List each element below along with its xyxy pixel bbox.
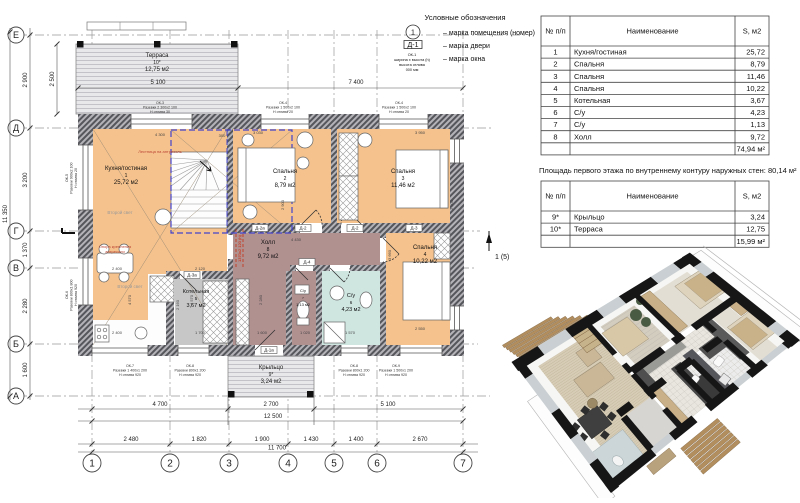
svg-text:1 370: 1 370 bbox=[23, 242, 29, 258]
svg-text:2 160: 2 160 bbox=[175, 299, 180, 310]
svg-text:3: 3 bbox=[402, 176, 405, 182]
svg-text:Терраса: Терраса bbox=[145, 53, 169, 59]
svg-text:высота отлива: высота отлива bbox=[399, 63, 426, 67]
svg-text:4 700: 4 700 bbox=[152, 402, 168, 408]
svg-text:Кухня/гостиная: Кухня/гостиная bbox=[105, 166, 147, 172]
svg-text:S, м2: S, м2 bbox=[743, 192, 762, 201]
svg-text:Н отлива 920: Н отлива 920 bbox=[119, 373, 141, 377]
svg-text:Разевки 1 500х2 100: Разевки 1 500х2 100 bbox=[266, 106, 300, 110]
svg-text:3: 3 bbox=[553, 72, 557, 81]
svg-text:ОК-1: ОК-1 bbox=[408, 53, 417, 57]
svg-text:000 мм: 000 мм bbox=[406, 68, 419, 72]
svg-text:– марка помещения (номер): – марка помещения (номер) bbox=[443, 30, 535, 37]
svg-text:ОК-7: ОК-7 bbox=[126, 364, 134, 368]
svg-text:– марка окна: – марка окна bbox=[443, 56, 485, 63]
svg-text:Котельная: Котельная bbox=[183, 289, 210, 295]
svg-text:11,46 м2: 11,46 м2 bbox=[391, 183, 415, 189]
svg-text:Н отлива 920: Н отлива 920 bbox=[385, 373, 407, 377]
svg-text:Д-2: Д-2 bbox=[299, 226, 307, 231]
svg-text:1 600: 1 600 bbox=[23, 362, 29, 378]
svg-text:1,13 м2: 1,13 м2 bbox=[296, 302, 311, 307]
svg-text:5: 5 bbox=[331, 459, 337, 470]
svg-text:2 280: 2 280 bbox=[258, 294, 263, 305]
svg-text:10,22: 10,22 bbox=[746, 84, 765, 93]
svg-text:3 660: 3 660 bbox=[387, 249, 392, 260]
svg-text:12,75 м2: 12,75 м2 bbox=[145, 67, 170, 73]
svg-text:Разевки 1 500х1 200: Разевки 1 500х1 200 bbox=[379, 369, 413, 373]
svg-text:1 570: 1 570 bbox=[345, 330, 356, 335]
svg-text:2: 2 bbox=[553, 60, 557, 69]
svg-text:Лестница на антресоль: Лестница на антресоль bbox=[138, 149, 182, 154]
svg-text:1 020: 1 020 bbox=[300, 330, 311, 335]
svg-text:А: А bbox=[13, 391, 19, 401]
svg-text:11,46: 11,46 bbox=[747, 72, 765, 81]
svg-text:Спальня: Спальня bbox=[574, 60, 604, 69]
svg-text:Разевки 800х1 200: Разевки 800х1 200 bbox=[338, 369, 369, 373]
svg-text:2 550: 2 550 bbox=[415, 326, 426, 331]
svg-text:Второй свет: Второй свет bbox=[107, 209, 132, 215]
svg-text:Разевки 2 300х2 100: Разевки 2 300х2 100 bbox=[143, 106, 177, 110]
svg-text:Д: Д bbox=[13, 123, 19, 133]
svg-text:12,75: 12,75 bbox=[746, 225, 765, 234]
svg-text:Д-3: Д-3 bbox=[410, 226, 418, 231]
svg-text:4 570: 4 570 bbox=[189, 294, 194, 305]
svg-text:Д-2а: Д-2а bbox=[255, 226, 265, 231]
svg-text:3,24: 3,24 bbox=[750, 213, 765, 222]
svg-text:6: 6 bbox=[374, 459, 380, 470]
svg-text:Н отлива 920: Н отлива 920 bbox=[74, 284, 78, 306]
svg-text:С/у: С/у bbox=[574, 120, 586, 129]
svg-text:Разевки 1 500х2 100: Разевки 1 500х2 100 bbox=[382, 106, 416, 110]
svg-text:12 500: 12 500 bbox=[264, 414, 283, 420]
svg-text:2: 2 bbox=[284, 176, 287, 182]
svg-text:Разевки 1 400х1 200: Разевки 1 400х1 200 bbox=[113, 369, 147, 373]
svg-text:1: 1 bbox=[411, 30, 415, 37]
svg-text:Д-1а: Д-1а bbox=[264, 348, 274, 353]
svg-text:1 820: 1 820 bbox=[191, 437, 207, 443]
svg-text:2 900: 2 900 bbox=[449, 199, 454, 210]
svg-text:5: 5 bbox=[553, 96, 557, 105]
svg-text:9,72 м2: 9,72 м2 bbox=[258, 254, 279, 260]
svg-text:10*: 10* bbox=[153, 60, 161, 66]
svg-text:Котельная: Котельная bbox=[574, 96, 610, 105]
svg-text:Холл: Холл bbox=[261, 240, 276, 246]
svg-text:Холл: Холл bbox=[574, 132, 592, 141]
svg-text:4 300: 4 300 bbox=[155, 132, 166, 137]
svg-text:С/у: С/у bbox=[574, 108, 586, 117]
svg-text:3,24 м2: 3,24 м2 bbox=[261, 379, 282, 385]
svg-text:Кухня/гостиная: Кухня/гостиная bbox=[574, 48, 627, 57]
svg-text:8: 8 bbox=[267, 247, 270, 253]
svg-text:2 670: 2 670 bbox=[412, 437, 428, 443]
svg-text:№ п/п: № п/п bbox=[545, 192, 565, 201]
svg-text:Терраса: Терраса bbox=[574, 225, 604, 234]
svg-text:Крыльцо: Крыльцо bbox=[259, 365, 284, 371]
svg-text:8,79: 8,79 bbox=[750, 60, 765, 69]
svg-text:8,79 м2: 8,79 м2 bbox=[275, 183, 296, 189]
svg-text:10*: 10* bbox=[550, 225, 561, 234]
svg-text:Б: Б bbox=[13, 339, 19, 349]
svg-text:74,94 м²: 74,94 м² bbox=[736, 144, 765, 153]
svg-text:2 700: 2 700 bbox=[263, 402, 279, 408]
svg-text:С/у: С/у bbox=[347, 293, 356, 299]
svg-text:8: 8 bbox=[553, 132, 557, 141]
svg-text:Спальня: Спальня bbox=[574, 72, 604, 81]
svg-text:– марка двери: – марка двери bbox=[443, 43, 490, 50]
svg-text:6: 6 bbox=[553, 108, 557, 117]
svg-text:Спальня: Спальня bbox=[574, 84, 604, 93]
svg-text:5 100: 5 100 bbox=[380, 402, 396, 408]
svg-text:Спальня: Спальня bbox=[413, 245, 437, 251]
svg-text:Д-1: Д-1 bbox=[408, 42, 419, 49]
svg-text:1 (5): 1 (5) bbox=[495, 254, 509, 261]
svg-text:4 570: 4 570 bbox=[127, 294, 132, 305]
svg-text:5 100: 5 100 bbox=[150, 80, 166, 86]
svg-text:1 430: 1 430 bbox=[303, 437, 319, 443]
svg-text:1,13: 1,13 bbox=[750, 120, 765, 129]
svg-text:ОК-9: ОК-9 bbox=[392, 364, 400, 368]
svg-text:Н отлива 20: Н отлива 20 bbox=[389, 110, 409, 114]
svg-text:9,72: 9,72 bbox=[750, 132, 765, 141]
svg-text:С/у: С/у bbox=[300, 288, 306, 293]
svg-text:1 700: 1 700 bbox=[195, 330, 206, 335]
svg-text:Площадь первого этажа по внутр: Площадь первого этажа по внутреннему кон… bbox=[539, 166, 797, 175]
svg-text:3: 3 bbox=[226, 459, 232, 470]
svg-text:2 900: 2 900 bbox=[23, 72, 29, 88]
svg-text:9*: 9* bbox=[552, 213, 559, 222]
svg-text:ОК-6: ОК-6 bbox=[65, 291, 69, 299]
svg-text:4: 4 bbox=[285, 459, 291, 470]
svg-text:Н отлива 20: Н отлива 20 bbox=[273, 110, 293, 114]
svg-text:7: 7 bbox=[460, 459, 466, 470]
svg-text:Второй свет: Второй свет bbox=[117, 283, 142, 289]
svg-text:25,72: 25,72 bbox=[746, 48, 765, 57]
svg-text:3 950: 3 950 bbox=[415, 130, 426, 135]
svg-text:S, м2: S, м2 bbox=[743, 27, 762, 36]
svg-text:ОК-3: ОК-3 bbox=[156, 101, 164, 105]
svg-text:Г: Г bbox=[14, 226, 19, 236]
svg-text:1 900: 1 900 bbox=[254, 437, 270, 443]
svg-text:Разевки 800х1 200: Разевки 800х1 200 bbox=[174, 369, 205, 373]
svg-text:4,23 м2: 4,23 м2 bbox=[341, 307, 360, 313]
svg-text:ширина х высота (h): ширина х высота (h) bbox=[394, 58, 431, 62]
svg-text:3 200: 3 200 bbox=[23, 172, 29, 188]
svg-text:ОК-4: ОК-4 bbox=[279, 101, 287, 105]
svg-text:300: 300 bbox=[219, 133, 226, 138]
svg-text:Крыльцо: Крыльцо bbox=[574, 213, 605, 222]
svg-text:2 120: 2 120 bbox=[195, 266, 206, 271]
svg-text:ОК-4: ОК-4 bbox=[395, 101, 403, 105]
svg-text:3,67: 3,67 bbox=[750, 96, 765, 105]
svg-text:2 280: 2 280 bbox=[23, 298, 29, 314]
svg-text:ОК-5: ОК-5 bbox=[65, 174, 69, 182]
svg-text:2 480: 2 480 bbox=[123, 437, 139, 443]
svg-text:4,23: 4,23 bbox=[750, 108, 765, 117]
svg-text:В: В bbox=[13, 263, 19, 273]
svg-text:Условные обозначения: Условные обозначения bbox=[424, 13, 505, 22]
svg-text:Е: Е bbox=[13, 30, 19, 40]
svg-text:1 600: 1 600 bbox=[257, 330, 268, 335]
svg-text:25,72 м2: 25,72 м2 bbox=[114, 180, 139, 186]
svg-text:4: 4 bbox=[553, 84, 557, 93]
svg-text:15,99 м²: 15,99 м² bbox=[736, 237, 765, 246]
svg-text:1: 1 bbox=[125, 173, 128, 179]
svg-text:Н отлива 920: Н отлива 920 bbox=[179, 373, 201, 377]
svg-text:2: 2 bbox=[167, 459, 173, 470]
svg-text:ОК-8: ОК-8 bbox=[350, 364, 358, 368]
svg-text:Спальня: Спальня bbox=[391, 169, 415, 175]
svg-text:2 400: 2 400 bbox=[112, 266, 123, 271]
svg-text:Н отлива 20: Н отлива 20 bbox=[74, 168, 78, 188]
svg-text:11 700: 11 700 bbox=[268, 446, 287, 452]
svg-text:Разевки 900х2 100: Разевки 900х2 100 bbox=[70, 162, 74, 193]
svg-text:2 500: 2 500 bbox=[50, 71, 56, 87]
svg-text:Разевки 800х1 800: Разевки 800х1 800 bbox=[70, 279, 74, 310]
svg-text:1: 1 bbox=[553, 48, 557, 57]
svg-text:9*: 9* bbox=[269, 372, 274, 378]
svg-text:4 430: 4 430 bbox=[291, 237, 302, 242]
svg-text:Д-4: Д-4 bbox=[303, 260, 311, 265]
svg-text:4: 4 bbox=[424, 252, 427, 258]
svg-text:10,22 м2: 10,22 м2 bbox=[413, 259, 438, 265]
svg-text:2 400: 2 400 bbox=[112, 330, 123, 335]
svg-text:1: 1 bbox=[89, 459, 95, 470]
svg-text:2 900: 2 900 bbox=[280, 199, 285, 210]
svg-text:11 350: 11 350 bbox=[3, 204, 9, 223]
svg-text:3 030: 3 030 bbox=[253, 130, 264, 135]
svg-text:антресоли: антресоли bbox=[105, 249, 124, 254]
svg-text:7 400: 7 400 bbox=[348, 80, 364, 86]
svg-text:1370х2 120 (h): 1370х2 120 (h) bbox=[237, 234, 242, 262]
svg-text:Д-2: Д-2 bbox=[351, 226, 359, 231]
svg-text:7: 7 bbox=[553, 120, 557, 129]
svg-text:Наименование: Наименование bbox=[627, 27, 679, 36]
svg-text:1 400: 1 400 bbox=[348, 437, 364, 443]
svg-text:№ п/п: № п/п bbox=[545, 27, 565, 36]
svg-text:Н отлива 920: Н отлива 920 bbox=[343, 373, 365, 377]
svg-text:Д-3а: Д-3а bbox=[187, 273, 197, 278]
svg-text:Н отлива 30: Н отлива 30 bbox=[150, 110, 170, 114]
svg-text:Наименование: Наименование bbox=[627, 192, 679, 201]
svg-text:Спальня: Спальня bbox=[273, 169, 297, 175]
svg-text:ОК-8: ОК-8 bbox=[186, 364, 194, 368]
